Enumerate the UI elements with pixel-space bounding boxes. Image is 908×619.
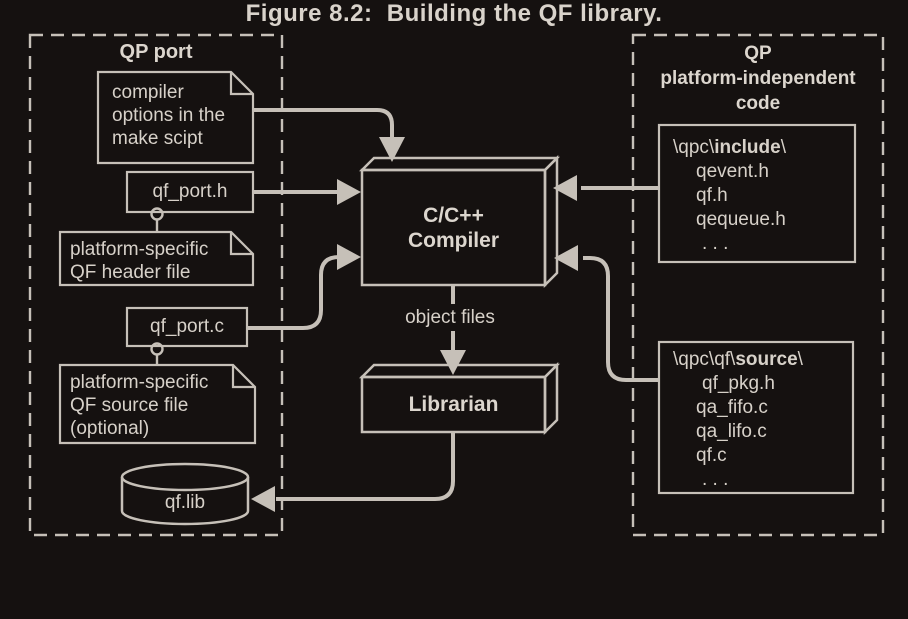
compiler-options-note: compiler options in the make scipt (112, 81, 225, 150)
figure-caption: Figure 8.2: Building the QF library. (0, 0, 908, 28)
compiler-options-line-3: make scipt (112, 127, 225, 150)
source-path-bold: source (735, 349, 797, 370)
qf-lib-label: qf.lib (122, 492, 248, 514)
arrowhead-qfporth (337, 179, 361, 205)
source-ellipsis: . . . (673, 468, 803, 492)
line-qfportc-to-compiler (247, 257, 339, 328)
compiler-right-face (545, 158, 557, 285)
source-note-line-1: platform-specific (70, 371, 208, 394)
include-path-line: \qpc\include\ (673, 136, 786, 160)
qf-port-h-text: qf_port.h (153, 181, 228, 203)
object-files-label: object files (385, 307, 515, 329)
figure-8-2-diagram: QP port compiler options in the make sci… (0, 0, 908, 619)
header-note-line-1: platform-specific (70, 238, 208, 261)
qp-independent-title-line-1: QP (633, 41, 883, 66)
qp-independent-title: QP platform-independent code (633, 41, 883, 116)
compiler-line-1: C/C++ (423, 203, 484, 228)
qf-port-c-text: qf_port.c (150, 316, 224, 338)
source-box: \qpc\qf\source\ qf_pkg.h qa_fifo.c qa_li… (673, 348, 803, 492)
source-path-prefix: \qpc\qf\ (673, 349, 735, 370)
arrowhead-qfportc (337, 244, 361, 270)
source-file-qf-pkg-h: qf_pkg.h (673, 372, 803, 396)
source-file-qa-fifo-c: qa_fifo.c (673, 396, 803, 420)
include-box: \qpc\include\ qevent.h qf.h qequeue.h . … (673, 136, 786, 256)
include-file-qevent-h: qevent.h (673, 160, 786, 184)
include-file-qequeue-h: qequeue.h (673, 208, 786, 232)
header-note: platform-specific QF header file (70, 238, 208, 284)
include-path-suffix: \ (781, 137, 786, 158)
qf-lib-text: qf.lib (165, 492, 205, 513)
arrowhead-into-librarian (440, 350, 466, 375)
connector-lines (247, 110, 659, 499)
qp-port-title: QP port (30, 40, 282, 65)
librarian-right-face (545, 365, 557, 432)
compiler-options-line-2: options in the (112, 104, 225, 127)
source-file-qa-lifo-c: qa_lifo.c (673, 420, 803, 444)
qp-port-title-text: QP port (30, 40, 282, 65)
arrowhead-into-qflib (251, 486, 275, 512)
source-note-line-3: (optional) (70, 417, 208, 440)
source-path-line: \qpc\qf\source\ (673, 348, 803, 372)
include-ellipsis: . . . (673, 232, 786, 256)
header-note-line-2: QF header file (70, 261, 208, 284)
qf-port-c-label: qf_port.c (127, 308, 247, 346)
source-note: platform-specific QF source file (option… (70, 371, 208, 440)
compiler-line-2: Compiler (408, 228, 499, 253)
line-note-to-compiler (253, 110, 392, 138)
qf-port-h-label: qf_port.h (127, 172, 253, 212)
include-path-bold: include (714, 137, 781, 158)
include-file-qf-h: qf.h (673, 184, 786, 208)
source-note-line-2: QF source file (70, 394, 208, 417)
source-file-qf-c: qf.c (673, 444, 803, 468)
line-librarian-to-qflib (276, 432, 453, 499)
compiler-options-line-1: compiler (112, 81, 225, 104)
line-source-to-compiler (583, 258, 659, 380)
include-path-prefix: \qpc\ (673, 137, 714, 158)
librarian-top-face (362, 365, 557, 377)
qp-independent-title-line-2: platform-independent (633, 66, 883, 91)
compiler-label: C/C++ Compiler (362, 170, 545, 285)
librarian-label: Librarian (362, 377, 545, 432)
source-path-suffix: \ (798, 349, 803, 370)
librarian-text: Librarian (409, 392, 499, 417)
qflib-cylinder-top (122, 464, 248, 490)
qp-independent-title-line-3: code (633, 91, 883, 116)
object-files-text: object files (405, 307, 495, 328)
